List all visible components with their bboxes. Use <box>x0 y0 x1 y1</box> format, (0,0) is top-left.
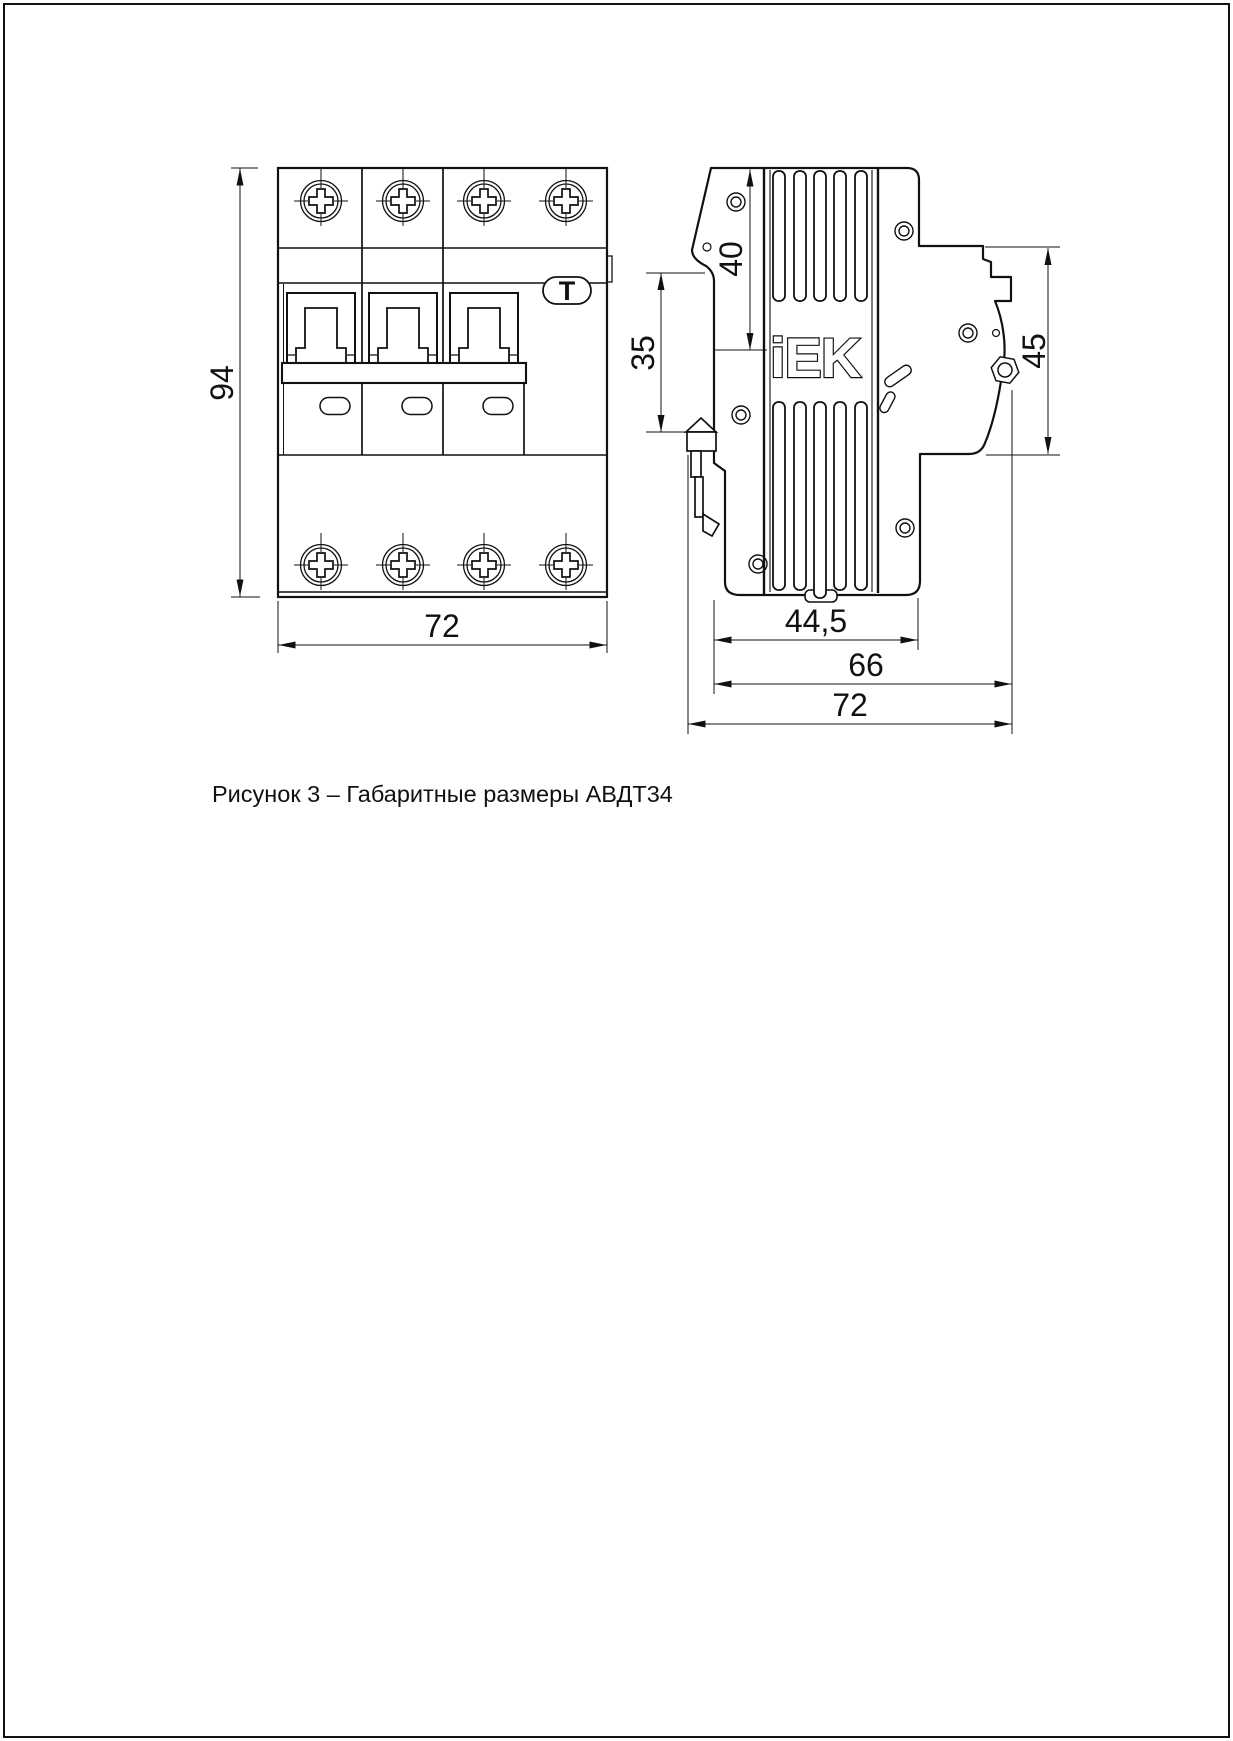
indicator-window <box>320 398 350 415</box>
dim-front-height: 94 <box>204 168 260 597</box>
svg-text:35: 35 <box>625 335 661 371</box>
dimension-drawing: T <box>0 0 1233 840</box>
test-button-label: T <box>559 276 576 306</box>
dim-body-depth: 44,5 <box>714 598 918 694</box>
svg-text:40: 40 <box>713 241 749 277</box>
indicator-window <box>402 398 432 415</box>
toggle-handle <box>369 293 437 363</box>
front-view: T <box>278 168 612 597</box>
svg-text:44,5: 44,5 <box>785 603 847 639</box>
document-page: T <box>0 0 1233 1741</box>
iek-logo: iEK <box>770 326 861 389</box>
svg-text:66: 66 <box>848 647 884 683</box>
svg-text:45: 45 <box>1016 333 1052 369</box>
dim-front-width: 72 <box>278 601 607 653</box>
indicator-window <box>483 398 513 415</box>
svg-text:94: 94 <box>204 365 240 401</box>
side-view: iEK <box>686 168 1019 602</box>
toggle-tie-bar <box>282 363 526 383</box>
toggle-handle <box>287 293 355 363</box>
svg-text:72: 72 <box>424 608 460 644</box>
test-button: T <box>543 276 591 306</box>
din-rail-clip <box>686 418 719 536</box>
toggle-handle <box>450 293 518 363</box>
svg-text:72: 72 <box>832 687 868 723</box>
dim-rail-width: 35 <box>625 273 705 432</box>
figure-caption: Рисунок 3 – Габаритные размеры АВДТ34 <box>212 781 673 808</box>
